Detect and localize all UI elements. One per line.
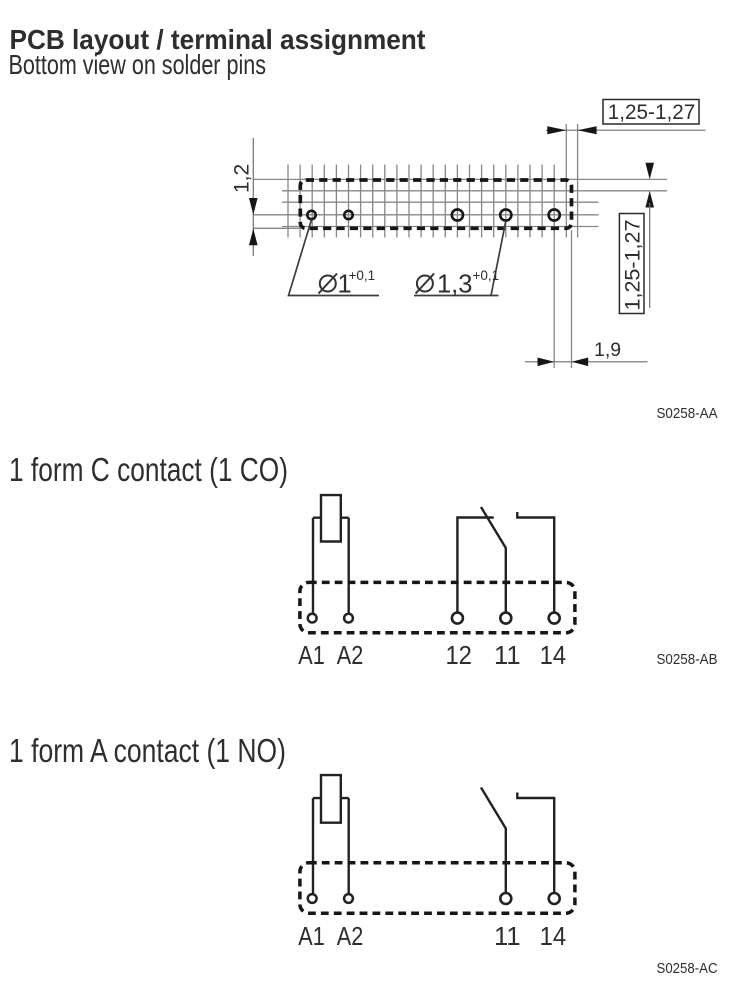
svg-text:1,25-1,27: 1,25-1,27	[621, 220, 645, 311]
svg-text:11: 11	[494, 642, 521, 670]
svg-text:A2: A2	[337, 923, 364, 951]
svg-text:A2: A2	[337, 642, 364, 670]
svg-text:Bottom view on solder pins: Bottom view on solder pins	[9, 49, 267, 80]
svg-text:14: 14	[540, 642, 567, 670]
svg-text:1 form C contact (1 CO): 1 form C contact (1 CO)	[9, 451, 288, 488]
svg-text:1 form A contact (1 NO): 1 form A contact (1 NO)	[9, 732, 286, 769]
svg-text:1,3: 1,3	[437, 271, 472, 299]
svg-text:+0,1: +0,1	[349, 268, 376, 283]
svg-text:A1: A1	[298, 923, 325, 951]
svg-text:+0,1: +0,1	[473, 268, 500, 283]
svg-text:12: 12	[445, 642, 472, 670]
svg-text:S0258-AA: S0258-AA	[657, 405, 718, 422]
svg-text:1,25-1,27: 1,25-1,27	[608, 100, 696, 124]
svg-text:1,2: 1,2	[231, 164, 254, 193]
svg-text:S0258-AC: S0258-AC	[657, 961, 718, 977]
svg-text:14: 14	[540, 923, 567, 951]
svg-text:S0258-AB: S0258-AB	[657, 652, 718, 668]
svg-text:A1: A1	[298, 642, 325, 670]
svg-text:11: 11	[494, 923, 521, 951]
svg-text:1,9: 1,9	[594, 339, 621, 361]
